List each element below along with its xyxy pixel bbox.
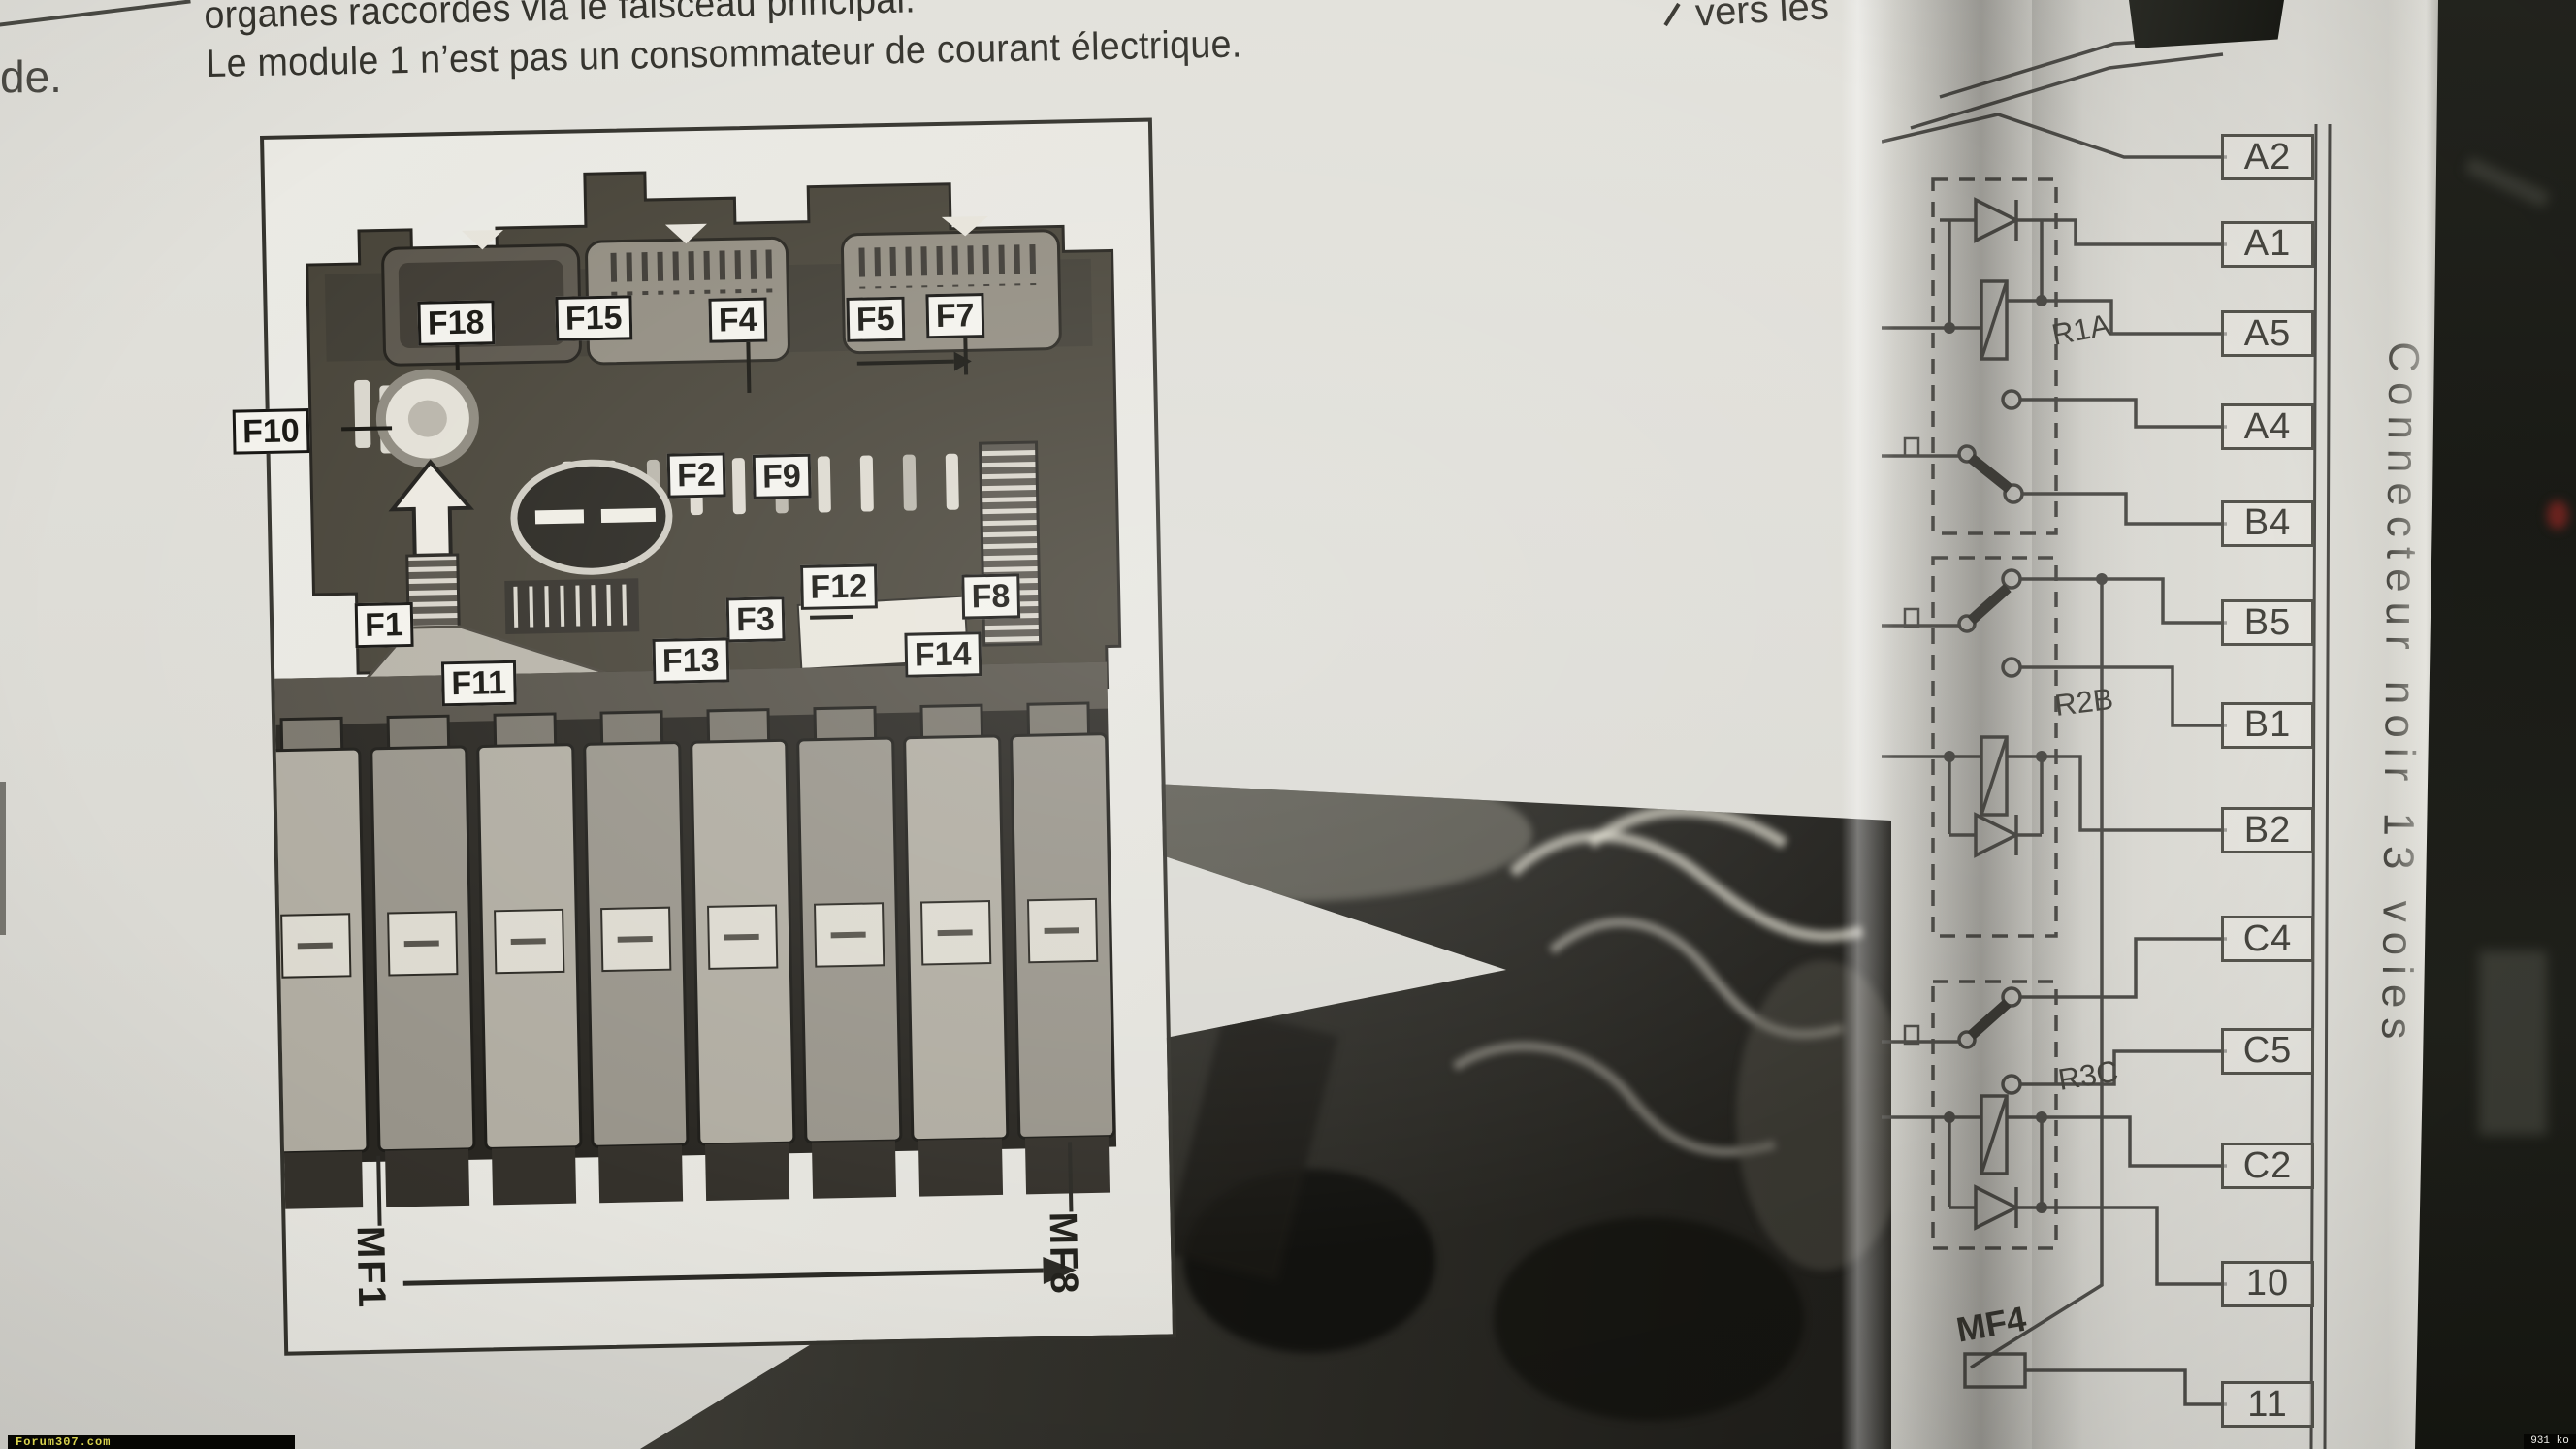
fuse-label-f4: F4: [708, 298, 767, 343]
background-streak: [2479, 950, 2547, 1135]
fuse-label-f7: F7: [925, 293, 984, 338]
fuse-label-f11: F11: [441, 660, 517, 707]
connector-pin-a4: A4: [2221, 403, 2314, 450]
margin-tick: [0, 782, 6, 935]
background-streak: [2464, 157, 2550, 209]
connector-pin-b5: B5: [2221, 599, 2314, 646]
relay-box-r2b: [1933, 558, 2056, 936]
fuse-label-f15: F15: [555, 295, 632, 341]
leader-line: [455, 345, 460, 370]
diode-icon: [1976, 200, 2016, 241]
fuse-label-f10: F10: [233, 408, 310, 455]
manual-photo: F18F15F4F5F7F10F2F9F12F8F3F13F14F1F11 MF…: [0, 0, 2576, 1449]
fusebox-figure: F18F15F4F5F7F10F2F9F12F8F3F13F14F1F11 MF…: [260, 118, 1176, 1356]
mf1-label: MF1: [348, 1226, 394, 1310]
fuse-label-f1: F1: [355, 602, 414, 648]
fuse-label-f9: F9: [753, 454, 812, 499]
fuse-label-f3: F3: [726, 596, 786, 642]
watermark-forum: Forum307.com: [8, 1435, 295, 1449]
diode-icon: [1976, 815, 2016, 855]
relay-label-r1a: R1A: [2049, 307, 2113, 352]
mf4-label: MF4: [1953, 1299, 2029, 1350]
connector-pin-a1: A1: [2221, 221, 2314, 268]
relay-label-r2b: R2B: [2053, 682, 2115, 723]
diode-icon: [1976, 1187, 2016, 1228]
relay-label-r3c: R3C: [2056, 1054, 2121, 1097]
fuse-label-f2: F2: [667, 452, 726, 498]
margin-note: de.: [0, 50, 62, 103]
background-red-detail: [2547, 500, 2568, 530]
fuse-label-f18: F18: [417, 300, 495, 346]
connector-pin-c5: C5: [2221, 1028, 2314, 1075]
connector-pin-c2: C2: [2221, 1143, 2314, 1189]
fuse-label-f13: F13: [652, 637, 729, 684]
connector-title: Connecteur noir 13 voies: [2331, 341, 2427, 1215]
connector-pin-a5: A5: [2221, 310, 2314, 357]
watermark-filesize: 931 ko: [2524, 1434, 2576, 1449]
mf4-fuse-symbol: [1965, 1354, 2025, 1387]
connector-pin-11: 11: [2221, 1381, 2314, 1428]
connector-pin-b1: B1: [2221, 702, 2314, 749]
fuse-label-f12: F12: [800, 563, 878, 610]
fuse-label-f5: F5: [846, 297, 905, 342]
connector-pin-a2: A2: [2221, 134, 2314, 180]
leader-line: [963, 338, 968, 374]
connector-pin-b2: B2: [2221, 807, 2314, 853]
fuse-label-f14: F14: [904, 631, 982, 678]
relay-coil-icon: [1981, 281, 2007, 359]
connector-pin-b4: B4: [2221, 500, 2314, 547]
connector-pin-c4: C4: [2221, 916, 2314, 962]
relay-coil-icon: [1981, 737, 2007, 815]
relay-coil-icon: [1981, 1096, 2007, 1174]
connector-pin-10: 10: [2221, 1261, 2314, 1307]
mf8-label: MF8: [1040, 1211, 1085, 1296]
fuse-label-f8: F8: [961, 573, 1020, 619]
